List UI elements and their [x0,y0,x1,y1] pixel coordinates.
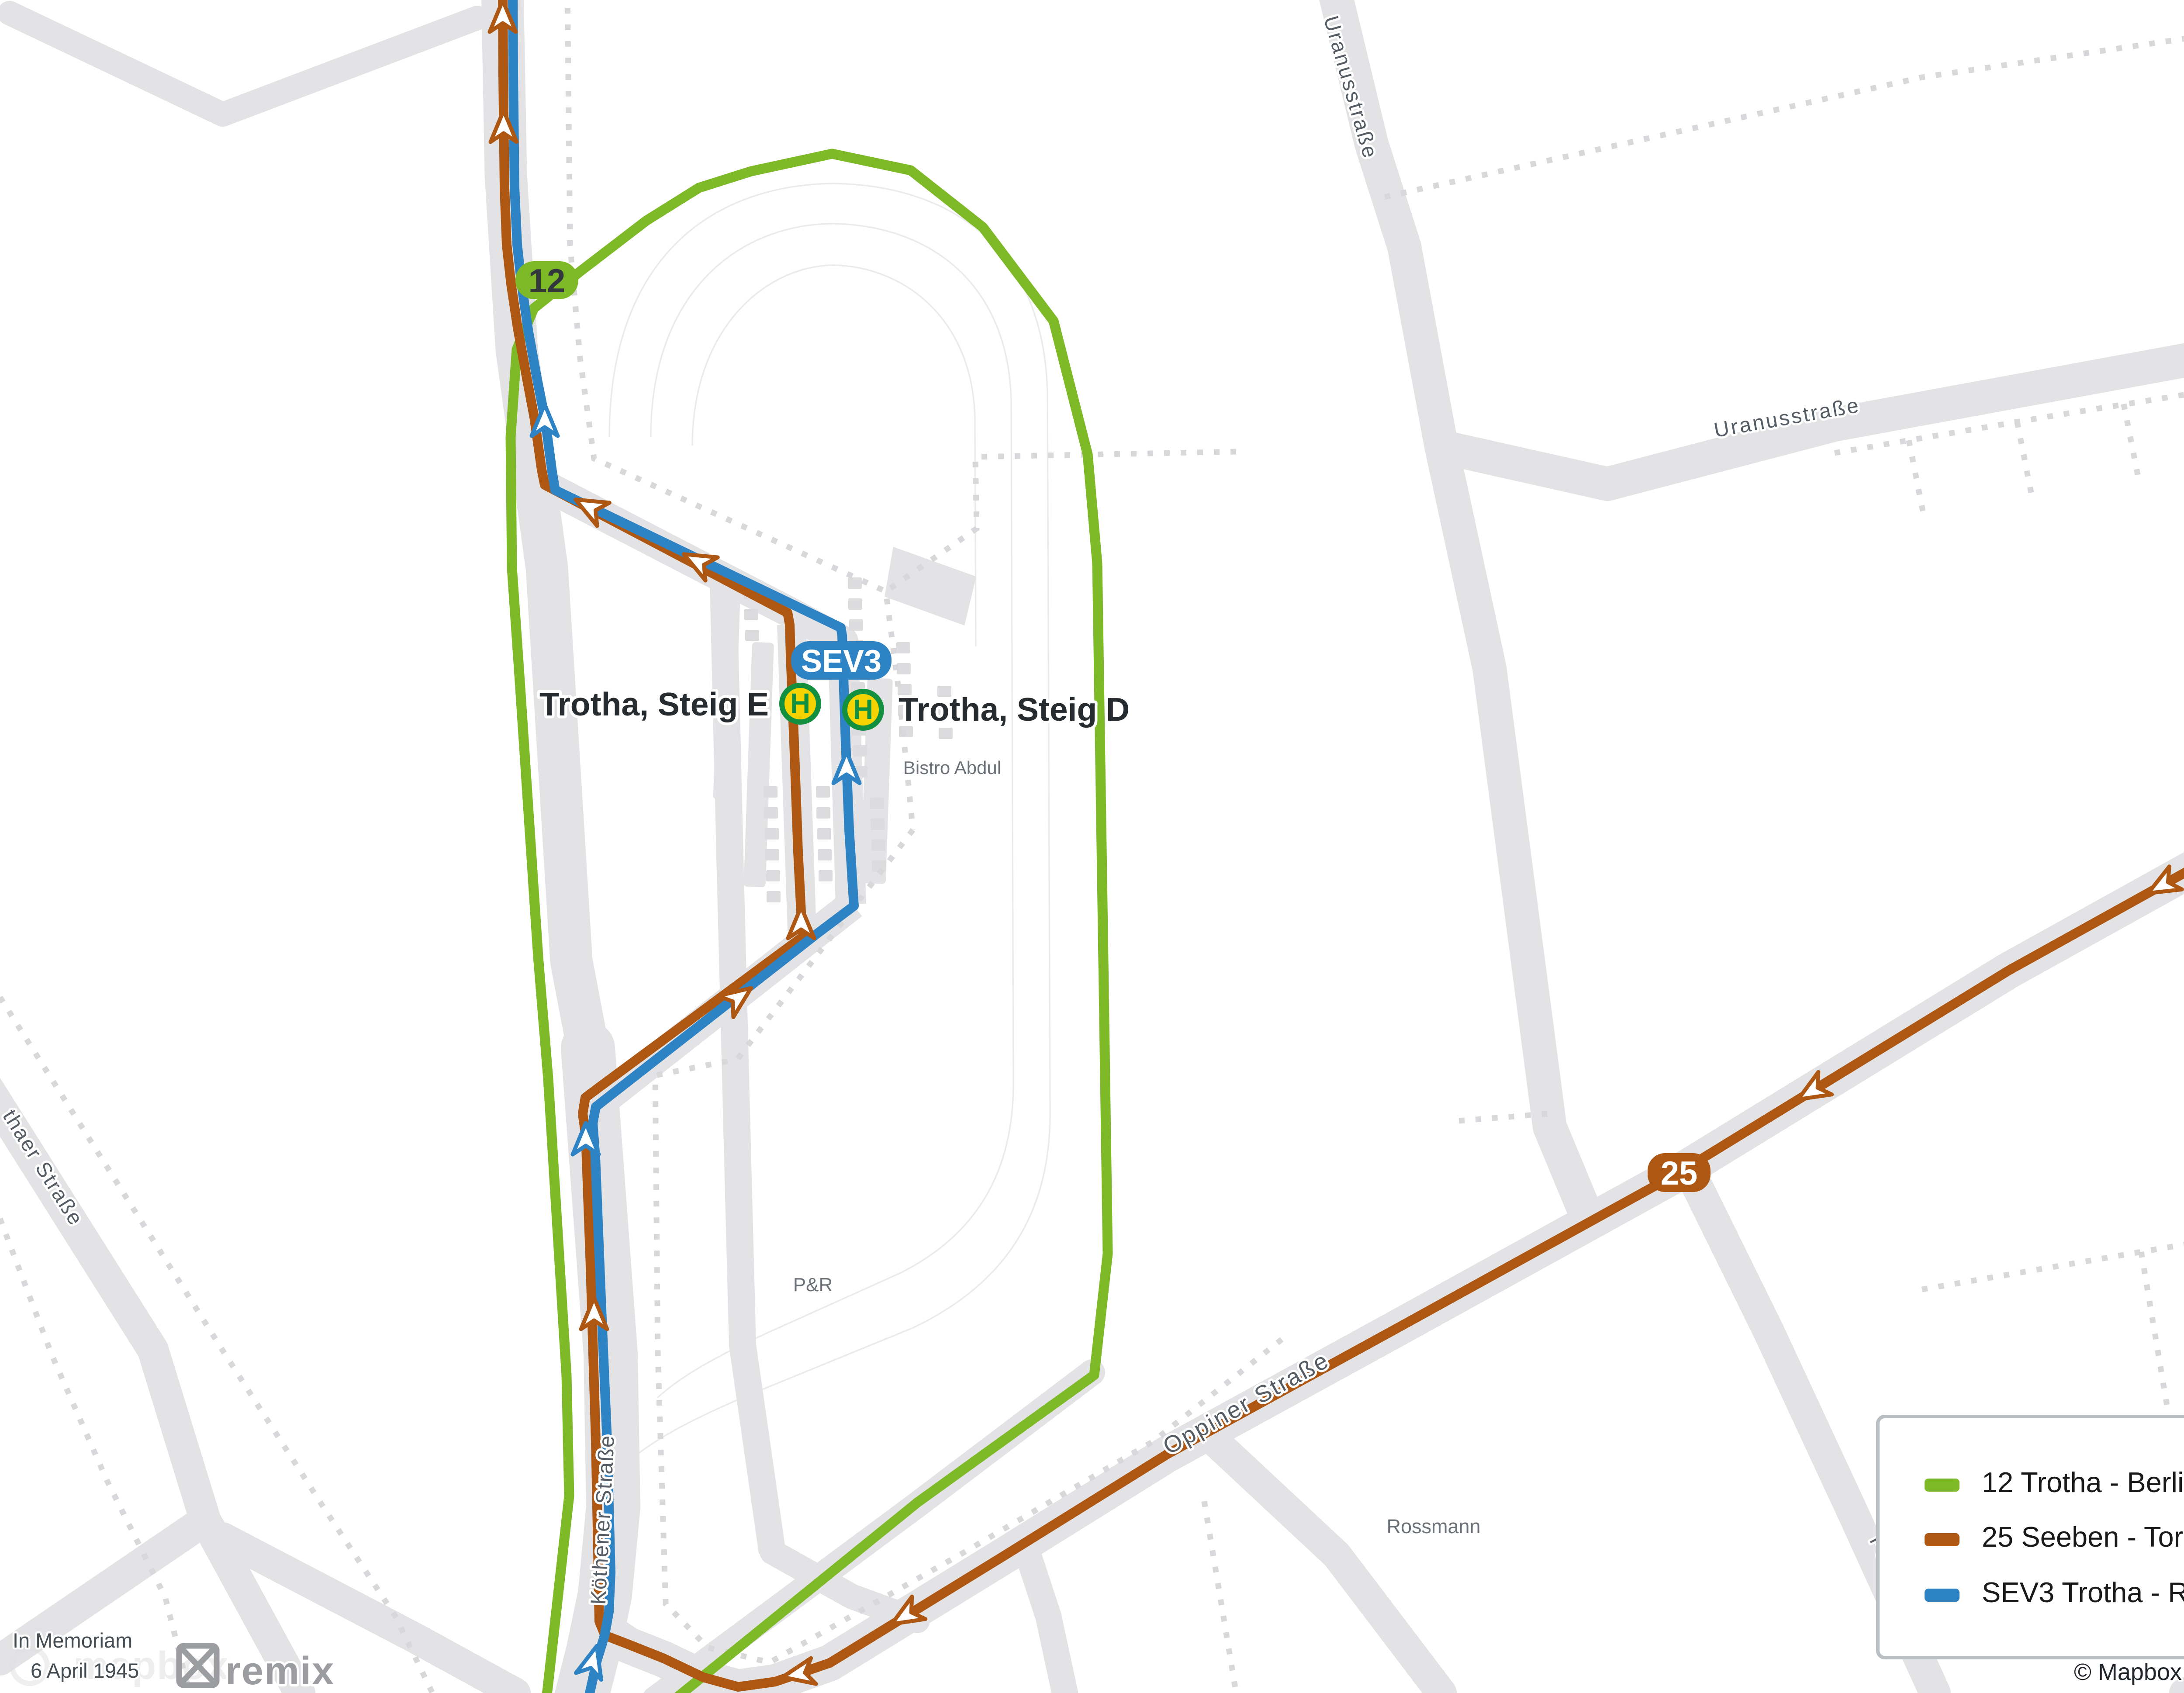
svg-text:Bistro Abdul: Bistro Abdul [903,757,1001,778]
svg-text:© Mapbox © OpenStreetMap: © Mapbox © OpenStreetMap [2074,1659,2184,1685]
svg-text:remix: remix [225,1649,335,1693]
svg-text:SEV3 Trotha - Reileck: SEV3 Trotha - Reileck [1982,1576,2184,1608]
svg-text:Rossmann: Rossmann [1386,1515,1480,1538]
svg-text:25 Seeben - Tornau: 25 Seeben - Tornau [1982,1521,2184,1553]
svg-text:P&R: P&R [793,1274,833,1296]
svg-text:Trotha, Steig D: Trotha, Steig D [898,691,1130,728]
svg-text:H: H [790,688,810,719]
svg-text:12: 12 [529,263,566,300]
svg-text:H: H [853,694,873,725]
svg-text:25: 25 [1661,1155,1698,1192]
svg-text:In Memoriam: In Memoriam [13,1629,132,1652]
svg-text:Trotha, Steig E: Trotha, Steig E [539,686,769,722]
svg-text:6 April 1945: 6 April 1945 [31,1659,139,1682]
svg-text:SEV3: SEV3 [801,644,881,679]
svg-text:12 Trotha - Berliner Brücke: 12 Trotha - Berliner Brücke [1982,1466,2184,1498]
